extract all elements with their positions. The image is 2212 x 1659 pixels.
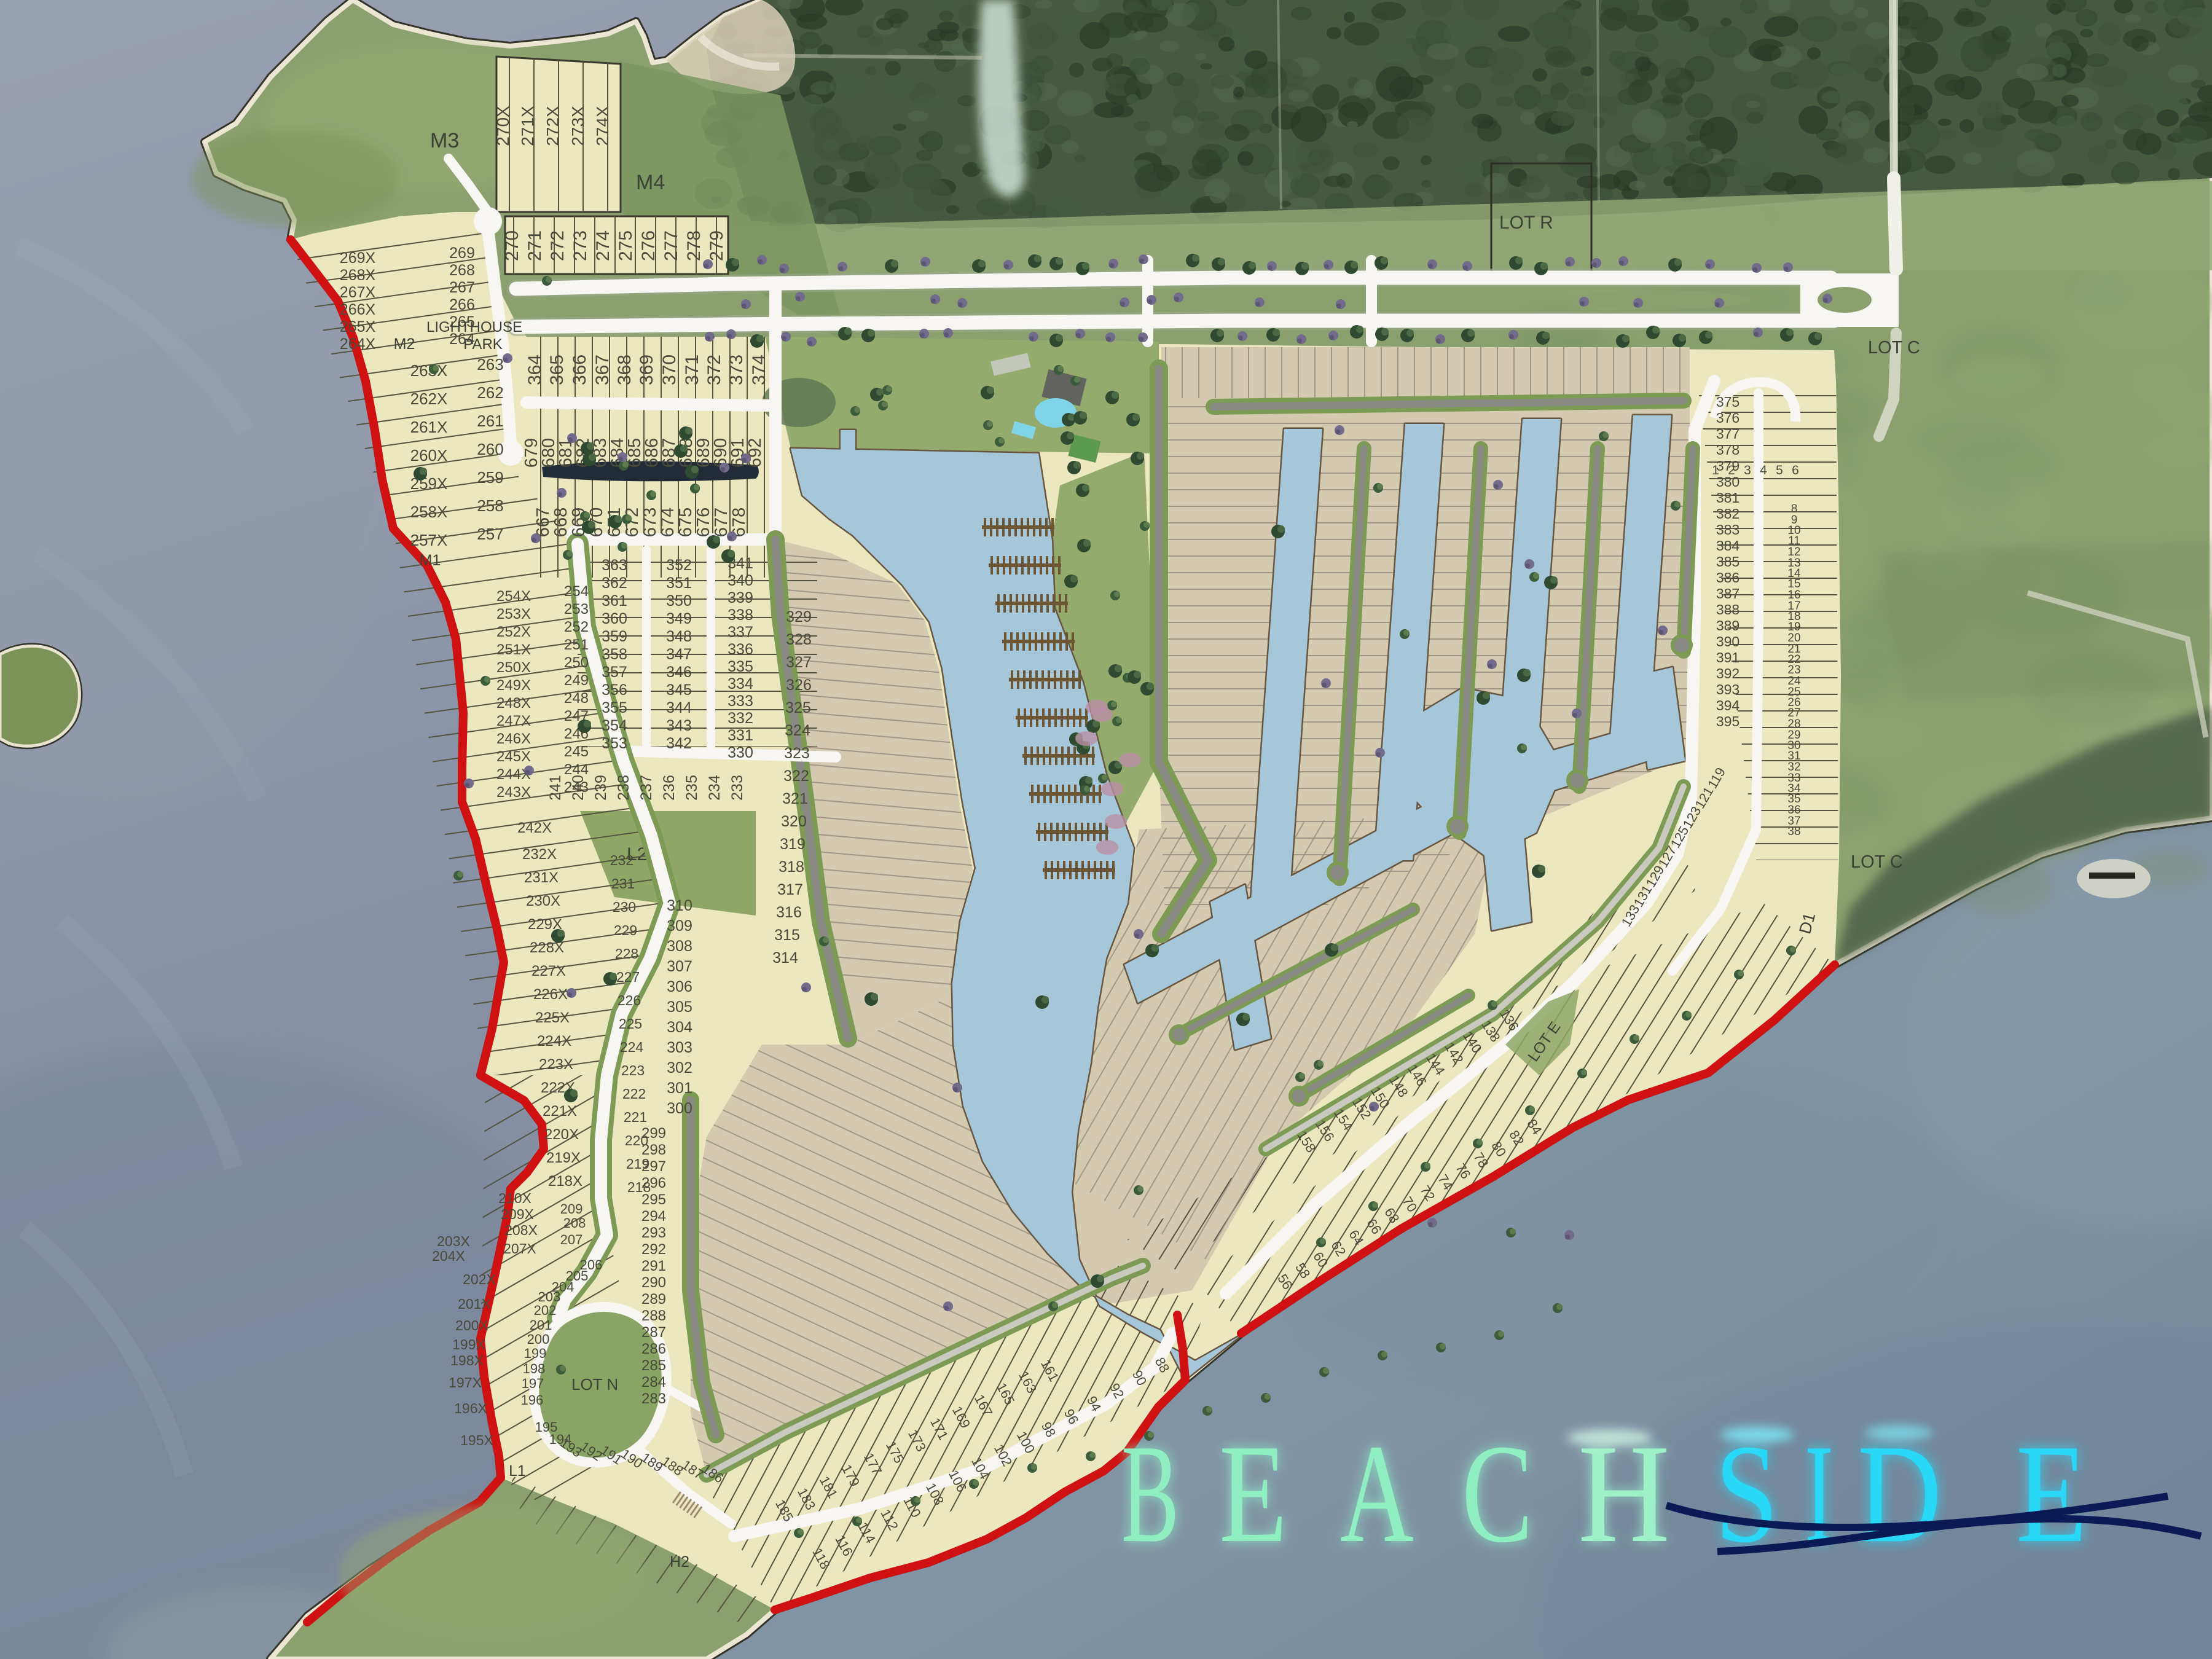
svg-text:299: 299	[641, 1125, 666, 1142]
svg-text:227: 227	[616, 969, 640, 985]
svg-text:381: 381	[1716, 490, 1739, 506]
svg-text:310: 310	[667, 897, 692, 914]
svg-text:340: 340	[728, 572, 753, 589]
svg-text:200X: 200X	[455, 1317, 488, 1333]
svg-text:262: 262	[477, 383, 503, 402]
svg-text:317: 317	[777, 881, 803, 898]
svg-text:243X: 243X	[496, 784, 531, 801]
svg-text:260: 260	[477, 440, 503, 458]
svg-text:385: 385	[1716, 554, 1739, 570]
svg-text:389: 389	[1716, 618, 1739, 633]
svg-text:209: 209	[560, 1201, 583, 1217]
svg-text:254: 254	[564, 583, 589, 600]
svg-text:279: 279	[707, 230, 727, 261]
svg-text:326: 326	[786, 677, 812, 694]
svg-text:327: 327	[786, 654, 812, 671]
svg-text:273X: 273X	[568, 106, 587, 146]
svg-text:361: 361	[602, 592, 627, 610]
svg-text:283: 283	[641, 1390, 666, 1407]
svg-text:267X: 267X	[340, 284, 376, 301]
svg-text:244: 244	[564, 761, 589, 778]
svg-text:292: 292	[641, 1241, 666, 1258]
svg-text:675: 675	[676, 508, 696, 537]
svg-text:334: 334	[728, 675, 753, 692]
svg-text:273: 273	[570, 230, 590, 261]
svg-text:301: 301	[667, 1080, 692, 1097]
svg-text:294: 294	[641, 1208, 666, 1225]
svg-text:320: 320	[781, 813, 807, 830]
svg-text:673: 673	[640, 508, 660, 537]
svg-text:274X: 274X	[593, 106, 612, 146]
svg-text:251X: 251X	[496, 641, 531, 658]
svg-text:250: 250	[564, 654, 589, 671]
svg-text:365: 365	[547, 355, 567, 385]
svg-text:223X: 223X	[539, 1056, 573, 1073]
svg-text:305: 305	[667, 998, 692, 1016]
svg-text:220X: 220X	[544, 1126, 579, 1143]
svg-text:249X: 249X	[496, 677, 531, 694]
svg-text:346: 346	[666, 664, 692, 681]
svg-text:261X: 261X	[410, 418, 448, 436]
svg-text:263X: 263X	[410, 361, 448, 380]
svg-text:300: 300	[667, 1100, 692, 1117]
svg-text:314: 314	[772, 949, 798, 967]
svg-text:318: 318	[779, 858, 804, 876]
svg-text:309: 309	[667, 917, 692, 935]
svg-text:195X: 195X	[460, 1432, 493, 1448]
svg-text:218X: 218X	[548, 1173, 582, 1190]
svg-text:367: 367	[592, 355, 613, 385]
svg-text:668: 668	[551, 508, 571, 537]
svg-text:325: 325	[785, 699, 811, 716]
svg-text:253X: 253X	[496, 606, 531, 622]
svg-text:348: 348	[666, 628, 692, 645]
svg-text:201: 201	[530, 1317, 552, 1333]
svg-text:293: 293	[641, 1225, 666, 1241]
svg-text:208: 208	[563, 1215, 586, 1231]
svg-text:378: 378	[1716, 442, 1739, 458]
svg-text:323: 323	[784, 745, 810, 762]
svg-text:235: 235	[683, 775, 700, 801]
svg-text:345: 345	[666, 681, 692, 699]
svg-text:230: 230	[613, 899, 636, 915]
svg-text:A: A	[1340, 1415, 1414, 1572]
svg-text:271: 271	[525, 230, 545, 261]
svg-text:38: 38	[1787, 825, 1800, 838]
svg-text:201X: 201X	[458, 1296, 491, 1312]
svg-text:219X: 219X	[546, 1150, 581, 1166]
svg-text:362: 362	[602, 575, 627, 592]
svg-text:355: 355	[602, 699, 627, 716]
svg-text:231X: 231X	[524, 869, 559, 886]
svg-text:238: 238	[615, 775, 632, 801]
svg-text:252X: 252X	[496, 624, 531, 640]
svg-text:384: 384	[1716, 538, 1740, 554]
svg-text:224: 224	[620, 1039, 644, 1055]
svg-text:264X: 264X	[340, 335, 376, 353]
svg-text:203X: 203X	[437, 1233, 470, 1249]
svg-text:241: 241	[547, 775, 564, 801]
svg-text:202: 202	[534, 1303, 557, 1318]
svg-text:254X: 254X	[496, 588, 531, 605]
svg-text:209X: 209X	[501, 1206, 534, 1222]
svg-text:344: 344	[666, 699, 692, 716]
svg-text:676: 676	[694, 508, 713, 537]
svg-text:674: 674	[658, 508, 678, 537]
svg-text:351: 351	[666, 575, 692, 592]
svg-text:232X: 232X	[522, 846, 557, 863]
svg-text:245: 245	[564, 743, 589, 760]
svg-text:374: 374	[749, 355, 769, 385]
svg-text:319: 319	[780, 836, 806, 853]
svg-text:272: 272	[547, 230, 568, 261]
svg-text:285: 285	[641, 1357, 666, 1374]
svg-text:272X: 272X	[543, 106, 562, 146]
svg-text:359: 359	[602, 628, 627, 645]
svg-text:227X: 227X	[531, 963, 566, 979]
svg-text:H2: H2	[670, 1553, 689, 1571]
svg-text:226X: 226X	[533, 986, 568, 1003]
svg-text:315: 315	[774, 927, 800, 944]
svg-text:376: 376	[1716, 410, 1739, 426]
svg-text:LIGHTHOUSE: LIGHTHOUSE	[426, 319, 522, 335]
svg-text:382: 382	[1716, 506, 1739, 522]
svg-text:226: 226	[618, 992, 641, 1008]
svg-text:354: 354	[602, 717, 627, 734]
svg-text:258X: 258X	[410, 503, 448, 521]
svg-text:275: 275	[616, 230, 636, 261]
svg-text:339: 339	[728, 589, 753, 606]
svg-text:329: 329	[786, 608, 812, 626]
svg-text:303: 303	[667, 1039, 692, 1056]
svg-text:M3: M3	[430, 129, 459, 152]
svg-text:LOT C: LOT C	[1868, 338, 1920, 358]
svg-text:297: 297	[641, 1158, 666, 1175]
svg-text:266X: 266X	[340, 301, 376, 318]
svg-text:LOT R: LOT R	[1499, 213, 1553, 233]
svg-text:259: 259	[477, 468, 503, 487]
svg-text:274: 274	[593, 230, 613, 261]
svg-text:284: 284	[641, 1374, 666, 1390]
svg-text:E: E	[1219, 1415, 1287, 1572]
svg-text:289: 289	[641, 1291, 666, 1308]
svg-text:225: 225	[619, 1016, 642, 1032]
svg-text:243: 243	[564, 779, 589, 796]
svg-text:394: 394	[1716, 697, 1740, 713]
svg-text:336: 336	[728, 641, 753, 658]
svg-text:C: C	[1462, 1415, 1533, 1572]
svg-text:364: 364	[525, 355, 545, 385]
svg-text:258: 258	[477, 496, 503, 515]
svg-text:250X: 250X	[496, 659, 531, 676]
svg-text:253: 253	[564, 601, 589, 618]
svg-text:270X: 270X	[493, 106, 512, 146]
svg-text:LOT C: LOT C	[1851, 852, 1903, 872]
svg-text:6: 6	[1792, 463, 1799, 477]
svg-text:228: 228	[615, 946, 638, 962]
svg-text:308: 308	[667, 938, 692, 955]
svg-text:347: 347	[666, 646, 692, 663]
svg-text:252: 252	[564, 619, 589, 635]
svg-text:249: 249	[564, 672, 589, 689]
svg-text:207X: 207X	[503, 1241, 536, 1257]
svg-text:371: 371	[682, 355, 702, 385]
svg-text:M1: M1	[420, 552, 441, 569]
svg-text:277: 277	[661, 230, 681, 261]
svg-text:LOT N: LOT N	[571, 1375, 618, 1394]
svg-text:L1: L1	[509, 1462, 526, 1480]
svg-text:234: 234	[706, 775, 723, 801]
svg-text:370: 370	[659, 355, 680, 385]
svg-text:246X: 246X	[496, 731, 531, 747]
svg-text:328: 328	[786, 631, 812, 648]
svg-text:390: 390	[1716, 633, 1739, 649]
svg-text:375: 375	[1716, 394, 1739, 410]
svg-text:1: 1	[1712, 463, 1719, 477]
svg-text:251: 251	[564, 637, 589, 653]
svg-text:208X: 208X	[504, 1222, 538, 1238]
svg-text:225X: 225X	[535, 1010, 570, 1026]
svg-text:202X: 202X	[463, 1271, 496, 1287]
svg-text:233: 233	[729, 775, 746, 801]
svg-text:338: 338	[728, 606, 753, 624]
svg-text:360: 360	[602, 610, 627, 627]
svg-text:267: 267	[449, 279, 475, 296]
svg-text:3: 3	[1744, 463, 1751, 477]
svg-text:262X: 262X	[410, 390, 448, 408]
svg-text:223: 223	[621, 1062, 645, 1078]
svg-text:200: 200	[527, 1332, 550, 1347]
svg-text:198X: 198X	[450, 1352, 484, 1368]
svg-text:260X: 260X	[410, 446, 448, 465]
svg-text:229: 229	[614, 922, 637, 938]
svg-text:248X: 248X	[496, 695, 531, 712]
svg-text:306: 306	[667, 978, 692, 995]
svg-text:377: 377	[1716, 426, 1739, 442]
svg-text:2: 2	[1728, 463, 1735, 477]
svg-text:667: 667	[533, 508, 553, 537]
svg-text:357: 357	[602, 664, 627, 681]
svg-text:352: 352	[666, 557, 692, 574]
svg-text:236: 236	[661, 775, 678, 801]
svg-text:196: 196	[521, 1392, 544, 1408]
svg-text:PARK: PARK	[463, 336, 503, 353]
svg-text:265X: 265X	[340, 318, 376, 335]
svg-text:363: 363	[602, 557, 627, 574]
svg-text:295: 295	[641, 1191, 666, 1208]
svg-text:322: 322	[783, 767, 809, 785]
svg-text:199X: 199X	[452, 1336, 485, 1352]
svg-text:278: 278	[684, 230, 704, 261]
svg-text:287: 287	[641, 1324, 666, 1341]
svg-text:321: 321	[782, 790, 808, 807]
svg-text:210X: 210X	[498, 1190, 531, 1206]
svg-text:330: 330	[728, 744, 753, 761]
svg-text:276: 276	[638, 230, 659, 261]
svg-text:366: 366	[570, 355, 590, 385]
svg-text:4: 4	[1760, 463, 1767, 477]
svg-text:350: 350	[666, 592, 692, 610]
svg-text:391: 391	[1716, 649, 1739, 665]
svg-text:335: 335	[728, 658, 753, 675]
svg-text:337: 337	[728, 624, 753, 641]
svg-text:197: 197	[522, 1376, 544, 1391]
svg-text:199: 199	[524, 1346, 547, 1361]
svg-text:286: 286	[641, 1341, 666, 1357]
svg-text:288: 288	[641, 1308, 666, 1324]
svg-text:677: 677	[712, 508, 731, 537]
svg-text:291: 291	[641, 1258, 666, 1274]
svg-text:358: 358	[602, 646, 627, 663]
svg-text:387: 387	[1716, 586, 1739, 602]
svg-text:248: 248	[564, 690, 589, 707]
svg-text:230X: 230X	[526, 893, 560, 909]
svg-text:B: B	[1121, 1415, 1179, 1572]
svg-text:M2: M2	[394, 335, 415, 353]
svg-text:271X: 271X	[518, 106, 537, 146]
svg-text:242X: 242X	[517, 820, 552, 836]
svg-text:221X: 221X	[543, 1103, 577, 1120]
svg-text:395: 395	[1716, 713, 1739, 729]
svg-text:237: 237	[638, 775, 655, 801]
svg-text:304: 304	[667, 1019, 692, 1036]
svg-text:E: E	[2016, 1415, 2087, 1572]
svg-text:332: 332	[728, 710, 753, 727]
svg-text:M4: M4	[636, 171, 665, 194]
svg-text:342: 342	[666, 735, 692, 752]
svg-text:204X: 204X	[432, 1248, 465, 1264]
svg-text:239: 239	[592, 775, 610, 801]
svg-text:356: 356	[602, 681, 627, 699]
svg-text:245X: 245X	[496, 748, 531, 765]
svg-text:270: 270	[502, 230, 522, 261]
svg-text:268: 268	[449, 262, 475, 279]
svg-text:372: 372	[704, 355, 724, 385]
svg-text:266: 266	[449, 296, 475, 313]
svg-text:269: 269	[449, 245, 475, 262]
svg-text:692: 692	[745, 438, 765, 468]
svg-text:I: I	[1805, 1415, 1834, 1572]
svg-text:307: 307	[667, 958, 692, 975]
svg-text:196X: 196X	[454, 1400, 487, 1416]
svg-text:261: 261	[477, 412, 503, 430]
svg-text:316: 316	[776, 904, 802, 921]
svg-text:353: 353	[602, 735, 627, 752]
svg-text:343: 343	[666, 717, 692, 734]
svg-text:268X: 268X	[340, 267, 376, 284]
svg-text:247X: 247X	[496, 713, 531, 729]
svg-text:257X: 257X	[410, 531, 448, 549]
svg-text:221: 221	[624, 1109, 647, 1125]
svg-text:331: 331	[728, 727, 753, 744]
svg-text:368: 368	[614, 355, 635, 385]
svg-text:197X: 197X	[449, 1375, 482, 1390]
svg-text:388: 388	[1716, 602, 1739, 618]
svg-text:393: 393	[1716, 681, 1739, 697]
svg-text:5: 5	[1776, 463, 1783, 477]
svg-text:302: 302	[667, 1059, 692, 1077]
svg-text:373: 373	[726, 355, 747, 385]
svg-text:386: 386	[1716, 570, 1739, 586]
svg-text:224X: 224X	[537, 1033, 571, 1049]
svg-text:222: 222	[622, 1086, 646, 1102]
svg-text:207: 207	[560, 1232, 583, 1247]
svg-text:383: 383	[1716, 522, 1739, 538]
svg-text:333: 333	[728, 692, 753, 710]
svg-text:369: 369	[637, 355, 657, 385]
svg-text:263: 263	[477, 355, 503, 374]
svg-text:257: 257	[477, 525, 503, 543]
svg-text:198: 198	[523, 1361, 546, 1376]
svg-text:269X: 269X	[340, 249, 376, 267]
svg-text:298: 298	[641, 1142, 666, 1158]
svg-text:349: 349	[666, 610, 692, 627]
svg-text:324: 324	[785, 722, 810, 739]
svg-text:290: 290	[641, 1274, 666, 1291]
svg-text:231: 231	[611, 876, 635, 892]
svg-text:232: 232	[610, 852, 633, 868]
svg-text:392: 392	[1716, 665, 1739, 681]
svg-text:296: 296	[641, 1175, 666, 1191]
